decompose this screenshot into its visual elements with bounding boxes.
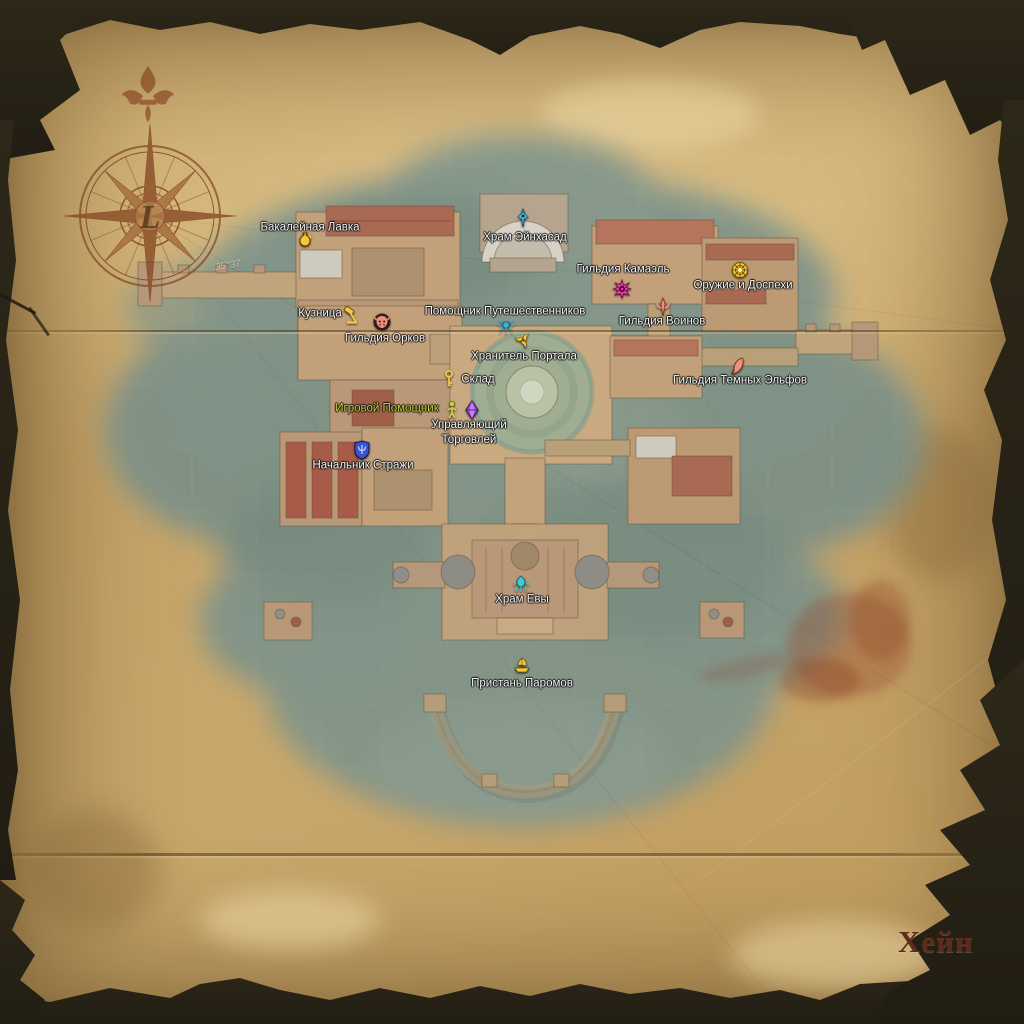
traveler-assistant-label: Помощник Путешественников <box>425 305 586 320</box>
warehouse-label: Склад <box>461 373 494 388</box>
game-assistant-label: Игровой Помощник <box>335 402 438 417</box>
eva-temple-label: Храм Евы <box>495 593 549 608</box>
guard-captain-label: Начальник Стражи <box>312 459 413 474</box>
fountain-sigil-icon <box>511 574 531 594</box>
shield-trident-icon <box>352 440 372 460</box>
person-icon <box>442 400 462 420</box>
temple-sigil-icon <box>513 208 533 228</box>
gem-icon <box>462 400 482 420</box>
hammer-icon <box>342 305 362 325</box>
weapons-armor-shop-label: Оружие и Доспехи <box>693 279 792 294</box>
spiked-sigil-icon <box>612 279 632 299</box>
kamael-guild-label: Гильдия Камаэль <box>577 263 670 278</box>
warrior-guild-label: Гильдия Воинов <box>619 315 706 330</box>
trade-manager-label: Управляющий Торговлей <box>431 418 507 448</box>
key-icon <box>439 369 459 389</box>
ferry-wharf-label: Пристань Паромов <box>471 677 573 692</box>
triple-swirl-icon <box>513 330 533 350</box>
ship-icon <box>512 655 532 675</box>
gatekeeper-label: Хранитель Портала <box>471 350 577 365</box>
orc-guild-label: Гильдия Орков <box>345 332 425 347</box>
lineage2-town-map-screen: L Бакалейная ЛавкаХрам ЭйнхасадГильдия К… <box>0 0 1024 1024</box>
grocery-shop-label: Бакалейная Лавка <box>260 221 359 236</box>
round-shield-icon <box>730 260 750 280</box>
blacksmith-label: Кузница <box>298 307 341 322</box>
town-name: Хейн <box>898 924 974 960</box>
orc-face-icon <box>372 312 392 332</box>
dark-elf-guild-label: Гильдия Темных Эльфов <box>673 374 807 389</box>
marker-layer: Бакалейная ЛавкаХрам ЭйнхасадГильдия Кам… <box>0 0 1024 1024</box>
einhasad-temple-label: Храм Эйнхасад <box>483 231 566 246</box>
